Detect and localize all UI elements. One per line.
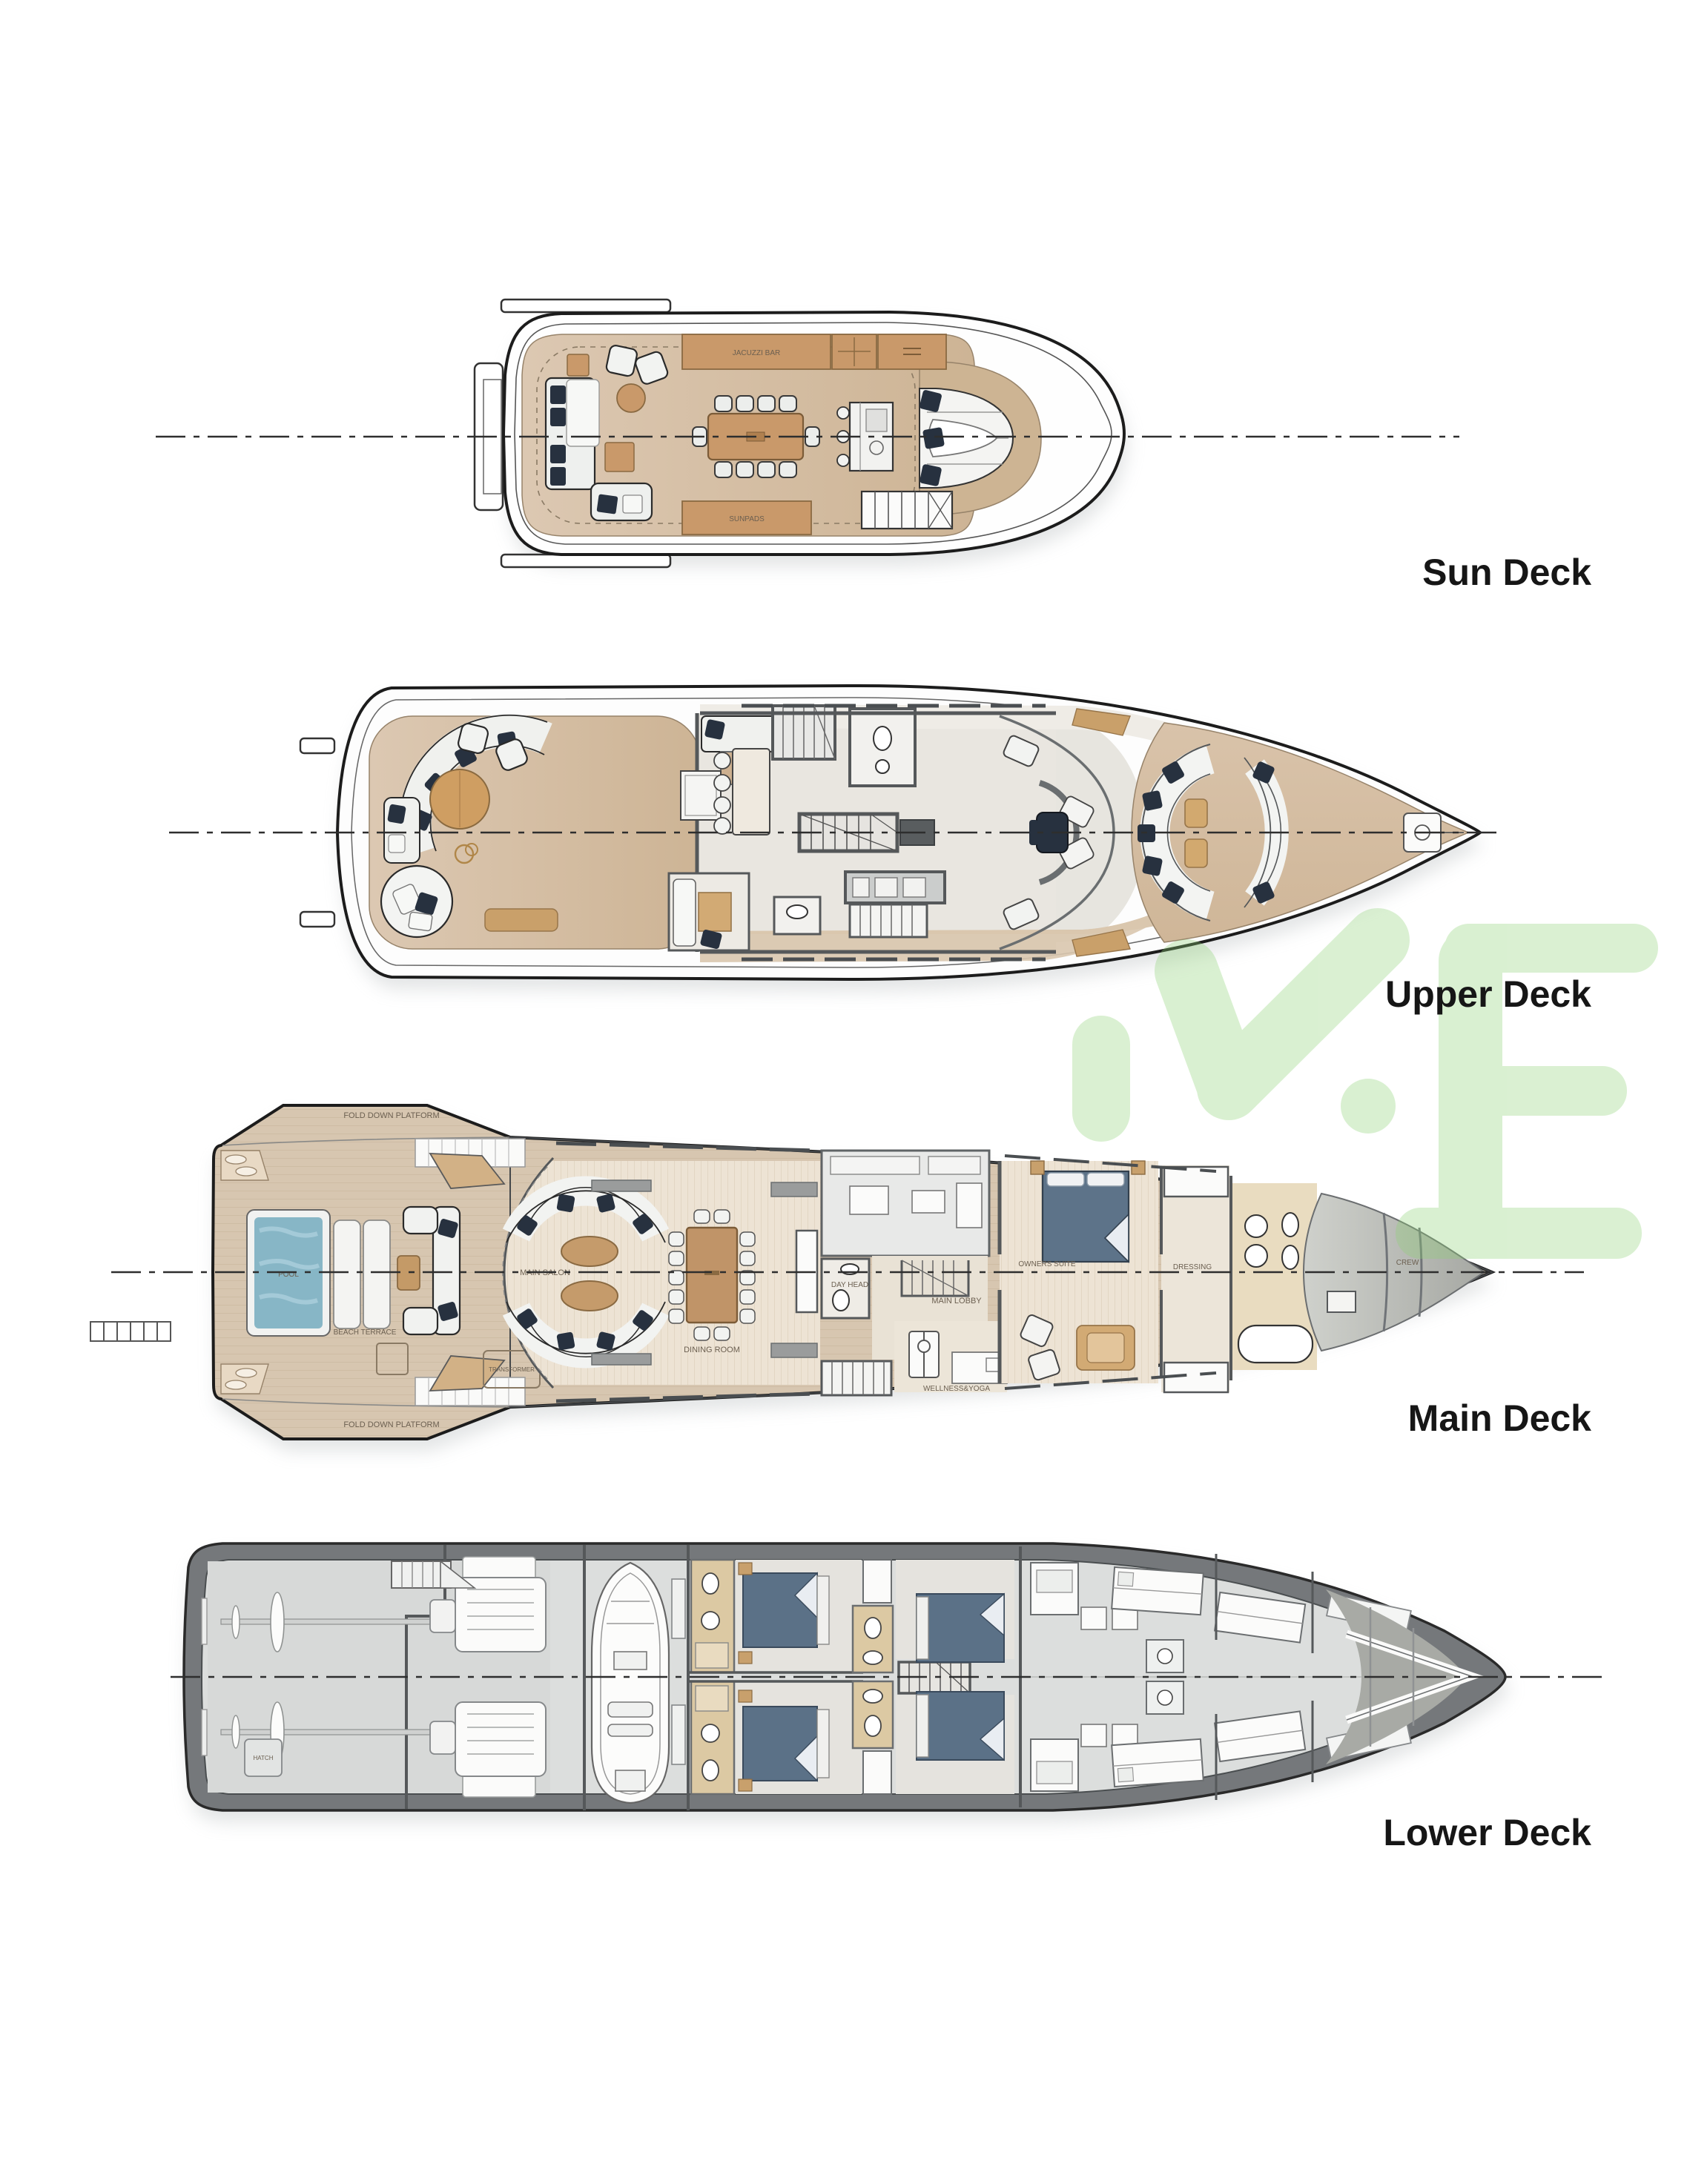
svg-text:WELLNESS&YOGA: WELLNESS&YOGA <box>923 1385 990 1393</box>
svg-text:Main Deck: Main Deck <box>1408 1397 1592 1439</box>
svg-text:Upper Deck: Upper Deck <box>1385 973 1591 1015</box>
svg-text:SUNPADS: SUNPADS <box>729 515 765 523</box>
svg-text:CREW: CREW <box>1396 1259 1419 1267</box>
svg-text:OWNERS SUITE: OWNERS SUITE <box>1018 1260 1076 1268</box>
svg-text:TRANSFORMER: TRANSFORMER <box>489 1366 535 1373</box>
svg-text:Sun Deck: Sun Deck <box>1422 552 1591 593</box>
svg-text:Lower Deck: Lower Deck <box>1383 1812 1591 1853</box>
svg-text:FOLD DOWN PLATFORM: FOLD DOWN PLATFORM <box>343 1420 439 1429</box>
svg-text:DRESSING: DRESSING <box>1173 1263 1212 1271</box>
svg-text:BEACH TERRACE: BEACH TERRACE <box>334 1328 397 1337</box>
svg-text:HATCH: HATCH <box>254 1755 274 1761</box>
svg-text:FOLD DOWN PLATFORM: FOLD DOWN PLATFORM <box>343 1111 439 1120</box>
svg-text:JACUZZI BAR: JACUZZI BAR <box>733 349 780 357</box>
svg-text:DAY HEAD: DAY HEAD <box>831 1281 868 1289</box>
svg-text:DINING ROOM: DINING ROOM <box>684 1346 740 1354</box>
svg-text:MAIN LOBBY: MAIN LOBBY <box>931 1297 982 1306</box>
